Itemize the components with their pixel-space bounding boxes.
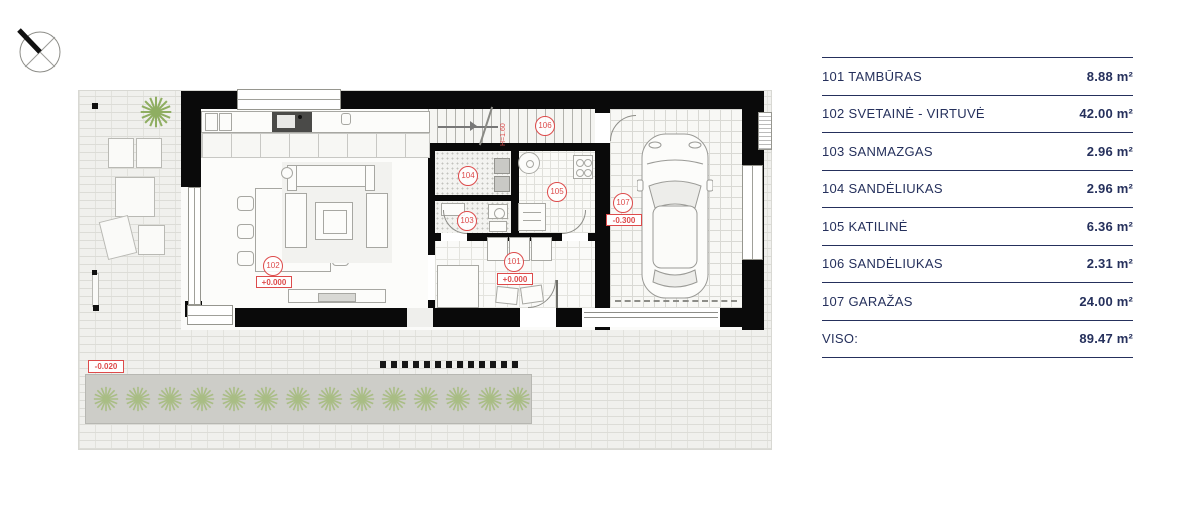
opening-103-door bbox=[441, 233, 467, 241]
room-area: 2.31 m² bbox=[1087, 256, 1133, 271]
storage-shelf bbox=[494, 176, 510, 192]
dining-chair bbox=[237, 251, 254, 266]
garage-gate-dashed-line bbox=[615, 300, 737, 302]
utility-unit bbox=[573, 155, 593, 179]
opening-102-101 bbox=[428, 255, 435, 300]
storage-shelf bbox=[494, 158, 510, 174]
site-marker bbox=[92, 270, 97, 275]
opening-bottom bbox=[407, 308, 433, 327]
parking-dotted-line bbox=[380, 361, 520, 368]
floor-lamp bbox=[281, 167, 293, 179]
total-area: 89.47 m² bbox=[1079, 331, 1133, 346]
room-label-102: 102 bbox=[263, 256, 283, 276]
room-name: 103 SANMAZGAS bbox=[822, 144, 933, 159]
window-top bbox=[237, 89, 341, 110]
room-label-107: 107 bbox=[613, 193, 633, 213]
coffee-table bbox=[315, 202, 353, 240]
terrace-lounger bbox=[136, 138, 162, 168]
table-row: 107 GARAŽAS 24.00 m² bbox=[822, 283, 1133, 321]
site-marker bbox=[93, 305, 99, 311]
terrace-chair bbox=[138, 225, 165, 255]
room-name: 107 GARAŽAS bbox=[822, 294, 913, 309]
room-name: 105 KATILINĖ bbox=[822, 219, 908, 234]
sofa-side bbox=[366, 193, 388, 248]
doormat bbox=[495, 286, 519, 305]
exterior-vent bbox=[758, 112, 772, 150]
opening-105-door bbox=[562, 233, 588, 241]
garage-gate-leaf bbox=[584, 312, 718, 318]
site-elevation-label: -0.020 bbox=[88, 360, 124, 373]
boiler bbox=[518, 152, 540, 174]
elevation-102: +0.000 bbox=[256, 276, 292, 288]
window-garage-right bbox=[742, 165, 763, 260]
room-label-104: 104 bbox=[458, 166, 478, 186]
terrace-lounger bbox=[108, 138, 134, 168]
wardrobe bbox=[531, 237, 552, 261]
door-leaf-entrance bbox=[556, 280, 558, 308]
room-area: 6.36 m² bbox=[1087, 219, 1133, 234]
elevation-107: -0.300 bbox=[606, 214, 642, 226]
room-name: 104 SANDĖLIUKAS bbox=[822, 181, 943, 196]
table-row: 103 SANMAZGAS 2.96 m² bbox=[822, 133, 1133, 171]
opening-entrance bbox=[520, 308, 556, 327]
terrace-sliding-door bbox=[188, 187, 201, 305]
opening-garage-door-int bbox=[595, 113, 610, 143]
room-name: 106 SANDĖLIUKAS bbox=[822, 256, 943, 271]
table-row: 102 SVETAINĖ - VIRTUVĖ 42.00 m² bbox=[822, 96, 1133, 134]
stair-arrow bbox=[438, 126, 498, 128]
wall-left bbox=[181, 91, 201, 187]
table-row-total: VISO: 89.47 m² bbox=[822, 321, 1133, 359]
terrace-bench bbox=[92, 273, 99, 307]
stair-height-note: H=1.60 bbox=[500, 123, 507, 146]
room-name: 101 TAMBŪRAS bbox=[822, 69, 922, 84]
site-marker bbox=[92, 103, 98, 109]
stair-arrow-head bbox=[470, 121, 477, 131]
room-area: 2.96 m² bbox=[1087, 144, 1133, 159]
bathroom-fixture bbox=[489, 221, 507, 232]
hall-cabinet bbox=[437, 265, 479, 308]
floor-plan-page: -0.020 bbox=[0, 0, 1200, 522]
kitchen-cabinets bbox=[201, 133, 430, 158]
kitchen-appliance bbox=[219, 113, 232, 131]
flower-bed-plants bbox=[86, 375, 531, 423]
room-area: 2.96 m² bbox=[1087, 181, 1133, 196]
car-top-view bbox=[637, 128, 713, 304]
table-row: 105 KATILINĖ 6.36 m² bbox=[822, 208, 1133, 246]
wall-104-103 bbox=[435, 195, 511, 201]
room-label-106: 106 bbox=[535, 116, 555, 136]
kitchen-sink bbox=[272, 112, 312, 132]
room-name: 102 SVETAINĖ - VIRTUVĖ bbox=[822, 106, 985, 121]
room-label-105: 105 bbox=[547, 182, 567, 202]
sofa-side bbox=[285, 193, 307, 248]
dining-chair bbox=[237, 196, 254, 211]
dining-chair bbox=[237, 224, 254, 239]
tree-icon bbox=[140, 96, 172, 128]
elevation-101: +0.000 bbox=[497, 273, 533, 285]
table-row: 106 SANDĖLIUKAS 2.31 m² bbox=[822, 246, 1133, 284]
table-row: 104 SANDĖLIUKAS 2.96 m² bbox=[822, 171, 1133, 209]
utility-unit bbox=[518, 203, 546, 231]
window-bottom bbox=[187, 305, 233, 325]
kitchen-appliance bbox=[205, 113, 218, 131]
tv-bench bbox=[288, 289, 386, 303]
total-label: VISO: bbox=[822, 331, 858, 346]
toilet bbox=[488, 204, 508, 219]
flower-bed bbox=[85, 374, 532, 424]
table-row: 101 TAMBŪRAS 8.88 m² bbox=[822, 58, 1133, 96]
kitchen-counter bbox=[201, 111, 430, 133]
sofa bbox=[296, 165, 366, 187]
sofa-arm bbox=[365, 165, 375, 191]
kitchen-fixture bbox=[341, 113, 351, 125]
room-label-101: 101 bbox=[504, 252, 524, 272]
room-area: 24.00 m² bbox=[1079, 294, 1133, 309]
terrace-table bbox=[115, 177, 155, 217]
room-schedule-table: 101 TAMBŪRAS 8.88 m² 102 SVETAINĖ - VIRT… bbox=[822, 57, 1133, 358]
room-label-103: 103 bbox=[457, 211, 477, 231]
room-area: 8.88 m² bbox=[1087, 69, 1133, 84]
room-area: 42.00 m² bbox=[1079, 106, 1133, 121]
north-compass-icon bbox=[14, 26, 66, 78]
